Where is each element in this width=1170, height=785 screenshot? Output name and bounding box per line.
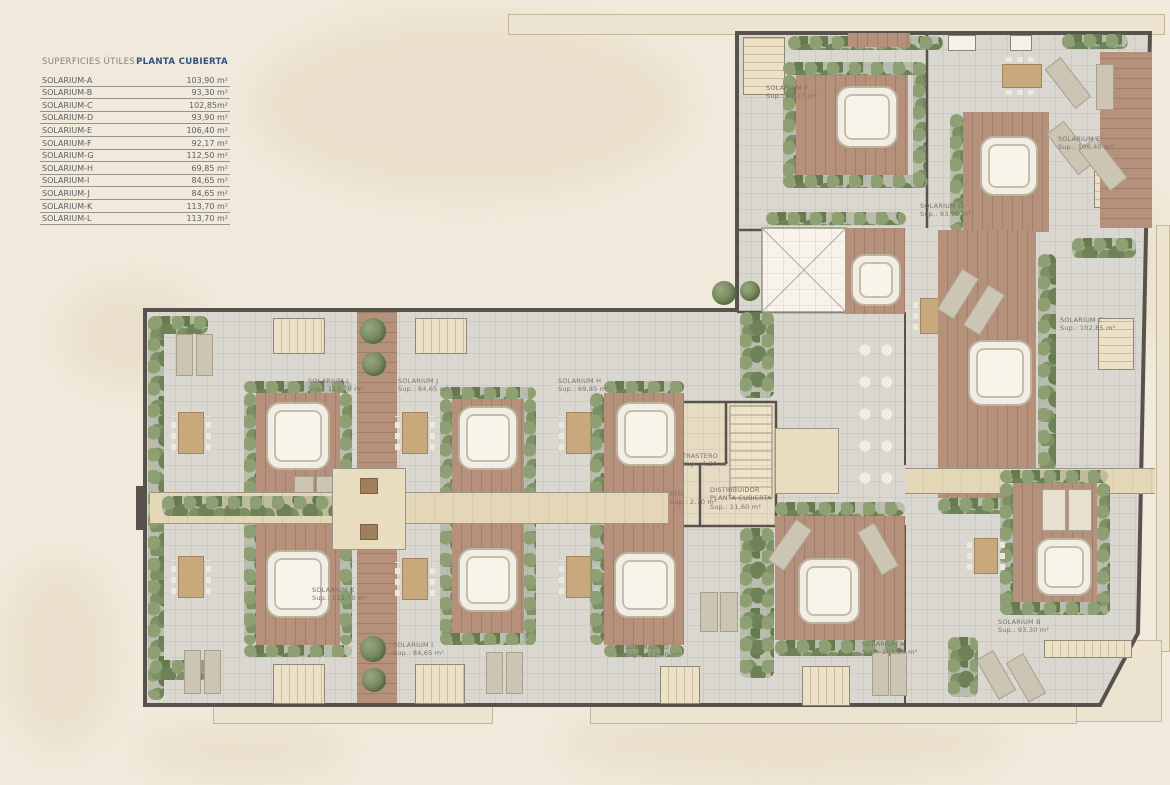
- hedge-row: [1062, 34, 1128, 49]
- sun-lounger: [1042, 489, 1066, 531]
- label-solarium-g: SOLARIUM GSup.: 112,50 m²: [625, 643, 680, 660]
- legend-row: SOLARIUM-I84,65 m²: [40, 175, 230, 188]
- legend-row: SOLARIUM-E106,40 m²: [40, 124, 230, 137]
- stairs: [802, 666, 850, 706]
- hedge-row: [948, 637, 978, 697]
- planter-box: [360, 524, 378, 540]
- bush: [362, 352, 386, 376]
- hedge-row: [1000, 470, 1108, 483]
- jacuzzi-j: [458, 406, 518, 470]
- hedge-row: [1038, 254, 1056, 498]
- sun-lounger: [196, 334, 213, 376]
- stairs: [273, 318, 325, 354]
- jacuzzi-g: [614, 552, 676, 618]
- stairs: [415, 318, 467, 354]
- label-solarium-c: SOLARIUM CSup.: 102,85 m²: [1060, 316, 1115, 333]
- bush: [740, 281, 760, 301]
- legend-row: SOLARIUM-B93,30 m²: [40, 87, 230, 100]
- sun-lounger: [486, 652, 503, 694]
- hedge-row: [913, 62, 926, 188]
- legend-row: SOLARIUM-J84,65 m²: [40, 187, 230, 200]
- chair-grid: [850, 330, 892, 486]
- roof-room: [1010, 35, 1032, 51]
- bush: [712, 281, 736, 305]
- planta-cubierta-plan-sheet: { "page_title": "PLANTA CUBIERTA", "lege…: [0, 0, 1170, 785]
- jacuzzi-a: [798, 558, 860, 624]
- legend-row: SOLARIUM-G112,50 m²: [40, 150, 230, 163]
- label-solarium-j: SOLARIUM JSup.: 84,65 m²: [398, 377, 449, 394]
- jacuzzi-d: [851, 254, 901, 306]
- label-solarium-e: SOLARIUM ESup.: 106,40 m²: [1058, 135, 1113, 152]
- hedge-row: [783, 62, 923, 75]
- label-solarium-i: SOLARIUM ISup.: 84,65 m²: [393, 641, 444, 658]
- hedge-row: [440, 387, 536, 399]
- label-solarium-a: SOLARIUM ASup.: 103,90 m²: [862, 640, 917, 657]
- label-solarium-h: SOLARIUM HSup.: 69,85 m²: [558, 377, 609, 394]
- sun-lounger: [890, 652, 907, 696]
- sun-lounger: [184, 650, 201, 694]
- hedge-row: [740, 312, 774, 398]
- hedge-row: [604, 381, 684, 393]
- jacuzzi-k: [266, 550, 330, 618]
- hedge-row: [783, 175, 928, 188]
- hedge-row: [1097, 483, 1110, 615]
- dining-table: [974, 538, 998, 574]
- areas-legend: SUPERFICIES ÚTILES PLANTA CUBIERTA SOLAR…: [40, 57, 230, 225]
- sun-lounger: [700, 592, 718, 632]
- walkway-planters: [162, 496, 342, 516]
- bush: [360, 318, 386, 344]
- legend-row: SOLARIUM-A103,90 m²: [40, 74, 230, 87]
- sun-lounger: [176, 334, 193, 376]
- legend-header: SUPERFICIES ÚTILES PLANTA CUBIERTA: [40, 57, 230, 67]
- hedge-row: [775, 502, 905, 516]
- legend-row: SOLARIUM-K113,70 m²: [40, 200, 230, 213]
- dining-table: [566, 412, 592, 454]
- sun-lounger: [506, 652, 523, 694]
- legend-title: SUPERFICIES ÚTILES: [42, 57, 135, 67]
- stairs: [1044, 640, 1132, 658]
- skylight: [762, 228, 846, 312]
- hedge-row: [440, 633, 536, 645]
- label-solarium-b: SOLARIUM BSup.: 93,30 m²: [998, 618, 1049, 635]
- bush: [360, 636, 386, 662]
- legend-row: SOLARIUM-C102,85m²: [40, 99, 230, 112]
- sun-lounger: [1096, 64, 1114, 110]
- sun-lounger: [720, 592, 738, 632]
- stairs: [660, 666, 700, 704]
- hedge-row: [1072, 238, 1136, 258]
- label-solarium-l: SOLARIUM LSup.: 113,70 m²: [308, 377, 363, 394]
- jacuzzi-i: [458, 548, 518, 612]
- sun-lounger: [1068, 489, 1092, 531]
- hedge-row: [740, 528, 774, 678]
- legend-row: SOLARIUM-F92,17 m²: [40, 137, 230, 150]
- dining-table: [1002, 64, 1042, 88]
- stairs: [273, 664, 325, 704]
- label-solarium-f: SOLARIUM FSup.: 92,17 m²: [766, 84, 817, 101]
- label-solarium-d: SOLARIUM DSup.: 93,90 m²: [920, 202, 971, 219]
- dining-table: [402, 558, 428, 600]
- jacuzzi-c: [968, 340, 1032, 406]
- sun-lounger: [872, 652, 889, 696]
- jacuzzi-b: [1036, 538, 1092, 596]
- jacuzzi-h: [616, 402, 676, 466]
- wood-strip: [848, 33, 910, 47]
- hedge-row: [766, 212, 906, 225]
- stairs: [415, 664, 465, 704]
- jacuzzi-e: [980, 136, 1038, 196]
- legend-row: SOLARIUM-L113,70 m²: [40, 213, 230, 226]
- legend-subtitle: PLANTA CUBIERTA: [136, 57, 228, 67]
- legend-row: SOLARIUM-D93,90 m²: [40, 112, 230, 125]
- roof-room: [948, 35, 976, 51]
- dining-table: [178, 412, 204, 454]
- planter-box: [360, 478, 378, 494]
- dining-table: [402, 412, 428, 454]
- label-distribuidor: DISTRIBUIDOR PLANTA CUBIERTA Sup.: 11,60…: [710, 486, 772, 511]
- dining-table: [566, 556, 592, 598]
- pergola-square: [775, 428, 839, 494]
- bush: [362, 668, 386, 692]
- hedge-row: [1000, 602, 1110, 615]
- jacuzzi-f: [836, 86, 898, 148]
- legend-row: SOLARIUM-H69,85 m²: [40, 162, 230, 175]
- hedge-row: [244, 645, 352, 657]
- jacuzzi-l: [266, 402, 330, 470]
- label-trastero: TRASTEROSup.: 4,30 m²: [682, 452, 729, 469]
- label-solarium-k: SOLARIUM KSup.: 113,70 m²: [312, 586, 367, 603]
- dining-table: [178, 556, 204, 598]
- hedge-row: [150, 316, 208, 334]
- sun-lounger: [204, 650, 221, 694]
